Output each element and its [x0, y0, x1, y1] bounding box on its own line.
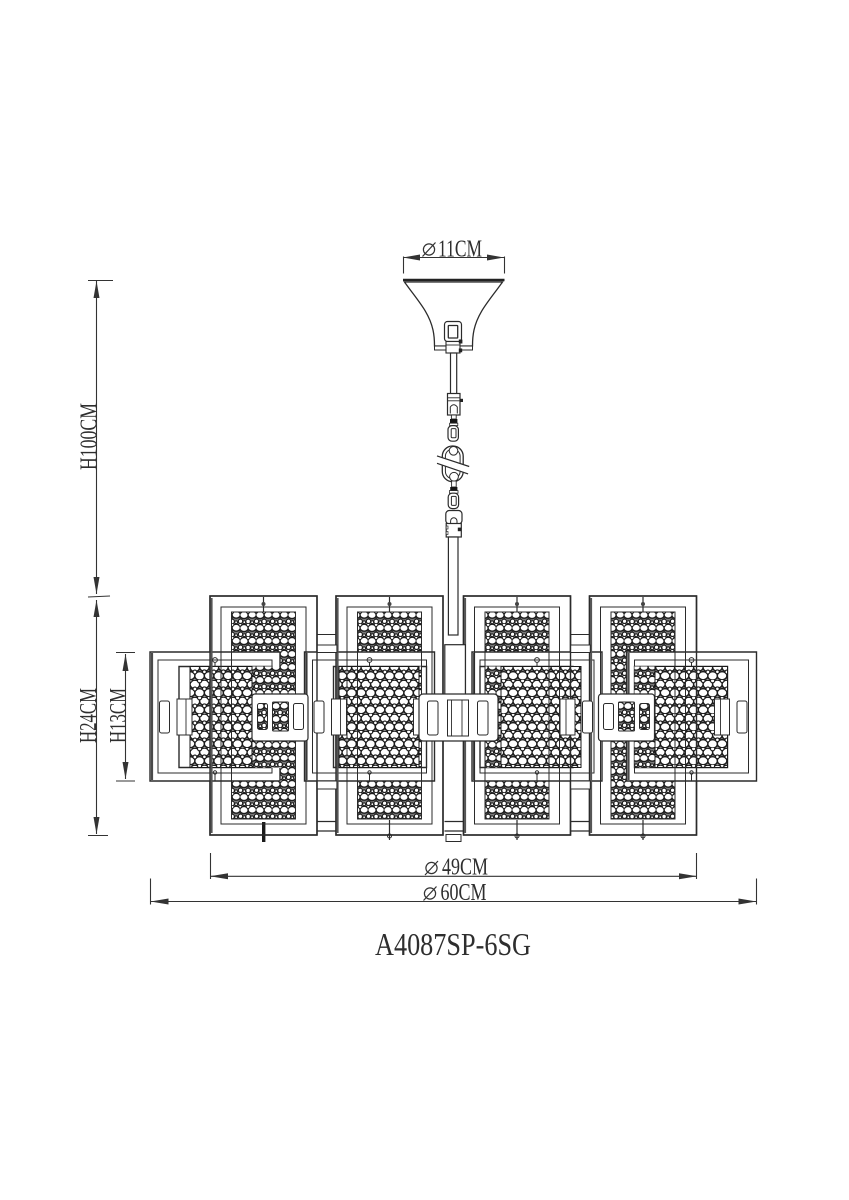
svg-text:49CM: 49CM — [442, 855, 488, 881]
svg-text:60CM: 60CM — [441, 880, 487, 906]
svg-text:H24CM: H24CM — [76, 688, 102, 743]
svg-text:H13CM: H13CM — [106, 688, 132, 743]
svg-text:H100CM: H100CM — [77, 403, 103, 470]
svg-text:A4087SP-6SG: A4087SP-6SG — [375, 926, 531, 962]
svg-text:11CM: 11CM — [438, 237, 482, 263]
